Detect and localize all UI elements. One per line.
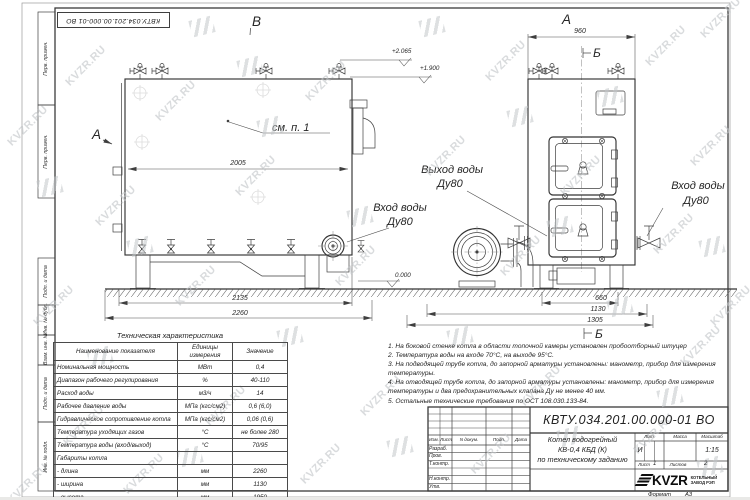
drawing-title: Котел водогрейный КВ-0,4 КБД (К) по техн…	[530, 435, 635, 465]
rev-header-ndoc: N докум.	[452, 435, 486, 445]
note-4: 4. На отводящей трубе котла, до запорной…	[388, 378, 744, 396]
table-row: Номинальная мощностьМВт0,4	[54, 361, 288, 374]
outlet-dn: Ду80	[435, 178, 463, 190]
rev-header-podp: Подп.	[486, 435, 512, 445]
dim-2260: 2260	[231, 310, 248, 317]
inlet-side-dn: Ду80	[385, 216, 413, 228]
note-2: 2. Температура воды на входе 70°С, на вы…	[388, 351, 744, 360]
drawing-title-line3: по техническому заданию	[530, 455, 635, 465]
elevation-boiler-top: +1.900	[420, 65, 440, 72]
blower-fan	[451, 226, 533, 287]
frame-label-perv-primen-1: Перв. примен.	[38, 12, 55, 105]
spec-header-value: Значение	[233, 343, 288, 361]
drawing-title-line1: Котел водогрейный	[530, 435, 635, 445]
marker-b-bottom: Б	[595, 327, 603, 341]
top-reference-stamp: КВТУ.034.201.00.000-01 ВО	[57, 12, 170, 28]
frame-label-perv-primen-2: Перв. примен.	[38, 105, 55, 198]
drawing-sheet: KVZR.RUKVZR.RUKVZR.RUKVZR.RUKVZR.RUKVZR.…	[0, 0, 750, 500]
spec-table-title: Техническая характеристика	[53, 331, 287, 340]
elevation-ground: 0.000	[395, 272, 411, 279]
dim-960: 960	[574, 28, 586, 35]
lit-value: И	[635, 441, 645, 461]
boiler-side-view	[113, 64, 375, 289]
table-row: - длинамм2260	[54, 465, 288, 478]
row-label-prov: Пров.	[429, 453, 442, 461]
rev-header-data: Дата	[512, 435, 530, 445]
lower-door	[549, 199, 618, 257]
marker-b-top: В	[252, 14, 261, 29]
dim-1305: 1305	[587, 317, 603, 324]
sheets-value: 2	[704, 461, 716, 467]
inlet-front-label: Вход воды	[671, 180, 724, 192]
kvzr-logo-icon	[634, 474, 653, 487]
sheet-label: Лист	[636, 461, 652, 469]
row-label-tkontr: Т.контр.	[429, 461, 449, 469]
lit-header: Лит.	[635, 432, 664, 441]
doc-number: КВТУ.034.201.00.000-01 ВО	[530, 408, 728, 433]
rev-header-list: Лист	[440, 435, 452, 445]
drawing-title-line2: КВ-0,4 КБД (К)	[530, 445, 635, 455]
callout-see-note-1: см. п. 1	[272, 122, 309, 134]
ground-hatch	[105, 289, 737, 297]
scale-header: Масштаб	[696, 432, 728, 441]
note-5: 5. Остальные технические требования по О…	[388, 397, 744, 406]
rev-header-izm: Изм.	[428, 435, 440, 445]
sheet-value: 1	[653, 461, 663, 467]
table-row: Расход водым3/ч14	[54, 387, 288, 400]
notes-block: 1. На боковой стенке котла в области топ…	[388, 342, 744, 406]
frame-label-podp-data-1: Подп. и дата	[38, 258, 55, 305]
table-row: Гидравлическое сопротивление котлаМПа (к…	[54, 413, 288, 426]
upper-door	[549, 137, 618, 195]
table-row: Температура уходящих газов°Сне более 280	[54, 426, 288, 439]
spec-header-row: Наименование показателя Единицы измерени…	[54, 343, 288, 361]
inlet-side-label: Вход воды	[373, 202, 426, 214]
marker-a-front: А	[561, 12, 571, 27]
note-1: 1. На боковой стенке котла в области топ…	[388, 342, 744, 351]
scale-value: 1:15	[696, 441, 728, 461]
dimensions: 2005 2135 2260 960 660 1130 1305	[105, 28, 653, 328]
note-3: 3. На подводящей трубе котла, до запорно…	[388, 360, 744, 378]
kvzr-logo-text: KVZR	[652, 473, 688, 488]
outlet-label: Выход воды	[421, 164, 483, 176]
sheets-label: Листов	[666, 461, 690, 469]
table-row: Диапазон рабочего регулирования%40-110	[54, 374, 288, 387]
dim-1130: 1130	[590, 306, 605, 313]
row-label-nkontr: Н.контр.	[429, 476, 450, 484]
kvzr-logo: KVZR КОТЕЛЬНЫЙ ЗАВОД РЭП	[637, 471, 726, 489]
front-inlet-valve	[637, 226, 660, 250]
dim-2135: 2135	[231, 295, 248, 302]
side-flange	[318, 231, 348, 261]
table-row: Рабочее давление водыМПа (кгс/см2)0,6 (6…	[54, 400, 288, 413]
dim-660: 660	[595, 295, 607, 302]
inlet-front-dn: Ду80	[681, 195, 709, 207]
row-label-utv: Утв.	[429, 484, 440, 492]
spec-header-units: Единицы измерения	[178, 343, 233, 361]
table-row: Габариты котла	[54, 452, 288, 465]
kvzr-logo-subtext: КОТЕЛЬНЫЙ ЗАВОД РЭП	[691, 475, 718, 485]
spec-table-block: Техническая характеристика Наименование …	[53, 331, 287, 500]
marker-a-left: А	[91, 127, 101, 142]
spec-table: Наименование показателя Единицы измерени…	[53, 342, 288, 500]
elevation-valve-top: +2.065	[392, 48, 412, 55]
top-stamp-text: КВТУ.034.201.00.000-01 ВО	[66, 17, 160, 24]
table-row: - ширинамм1130	[54, 478, 288, 491]
dim-2005: 2005	[229, 160, 246, 167]
table-row: Температура воды (вход/выход)°С70/95	[54, 439, 288, 452]
labels: см. п. 1 Выход воды Ду80 Вход воды Ду80 …	[227, 120, 725, 242]
marker-b-front: Б	[593, 46, 601, 60]
spec-header-name: Наименование показателя	[54, 343, 178, 361]
mass-header: Масса	[664, 432, 696, 441]
